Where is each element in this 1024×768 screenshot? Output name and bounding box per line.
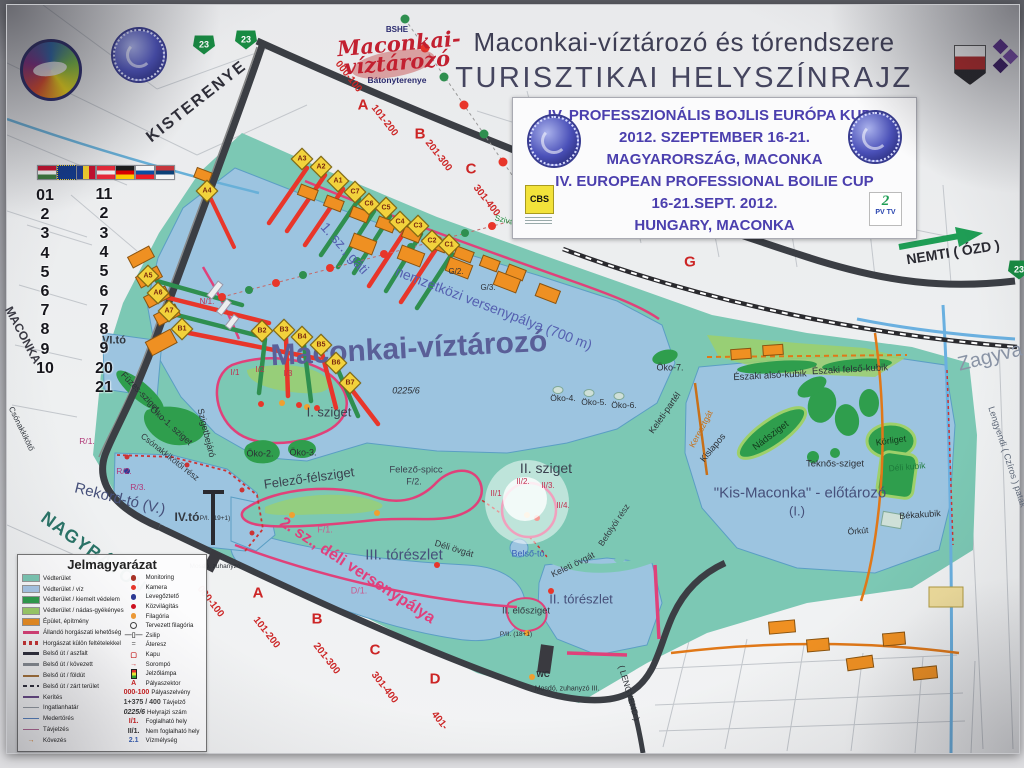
map-label: WC <box>536 671 549 679</box>
peg-label: A2 <box>317 164 326 171</box>
legend-item-label: Épület, építmény <box>43 618 89 625</box>
map-label: R/1. <box>79 437 95 446</box>
shore-number: 20 <box>95 360 113 378</box>
bshe-logo: BSHE Maconkai- víztározó Bátonyterenye <box>337 25 457 103</box>
swatch-line <box>23 729 39 730</box>
legend-item-label: Helyrajzi szám <box>147 709 187 716</box>
swatch-text: I/1. <box>129 718 139 725</box>
legend-item-label: Filagória <box>146 613 169 620</box>
swatch-ring <box>130 622 137 629</box>
peg-label: B7 <box>346 380 355 387</box>
legend-item: II/1.Nem foglalható hely <box>124 727 203 737</box>
event-line: HUNGARY, MACONKA <box>513 215 916 237</box>
legend-item: Belső út / kövezett <box>21 659 124 670</box>
legend-item-label: Horgászat külön feltételekkel <box>43 640 121 647</box>
legend-swatch: 0225/6 <box>124 709 145 716</box>
legend-swatch: A <box>124 680 144 687</box>
legend-item-label: Belső út / kövezett <box>43 661 93 668</box>
cbs-sponsor-logo: CBS <box>525 185 554 214</box>
peg-label: C6 <box>365 201 374 208</box>
swatch-text: 000-100 <box>124 689 150 696</box>
country-flag-eu <box>57 165 77 180</box>
peg-label: B5 <box>317 342 326 349</box>
map-label: Teknős-sziget <box>806 459 864 469</box>
legend-item-label: Védterület <box>43 575 71 582</box>
legend-item-label: Zsilip <box>146 632 160 639</box>
shore-number: 5 <box>41 264 50 282</box>
map-label: II/4. <box>556 502 569 510</box>
legend-item-label: Belső út / zárt terület <box>43 683 99 690</box>
legend-item: →Sorompó <box>124 659 203 669</box>
map-label: G <box>684 255 696 270</box>
cbs-logo-text-lines <box>525 217 552 226</box>
shore-number: 10 <box>36 360 54 378</box>
shore-number: 2 <box>41 206 50 224</box>
map-label: A <box>253 586 264 601</box>
legend-item: 1+375 / 400Távjelző <box>124 698 203 708</box>
legend-item: Kerítés <box>21 692 124 703</box>
shore-number: 9 <box>41 341 50 359</box>
shore-number: 21 <box>95 379 113 397</box>
swatch-text: 1+375 / 400 <box>124 699 161 706</box>
map-label: Öko-6. <box>611 401 637 410</box>
map-label: (I.) <box>789 505 805 518</box>
map-label: G/3. <box>480 284 495 292</box>
legend-item-label: Védterület / kiemelt védelem <box>43 596 120 603</box>
swatch-symbol: —▯— <box>125 631 143 639</box>
legend-swatch: = <box>124 641 144 648</box>
map-label: Felező-spicc <box>389 465 442 475</box>
map-label: B <box>415 127 426 142</box>
legend-swatch <box>21 696 41 698</box>
legend-swatch <box>21 607 41 615</box>
map-label: Öko-4. <box>550 394 576 403</box>
legend-swatch <box>21 574 41 582</box>
peg-label: A5 <box>144 273 153 280</box>
legend-item-label: Belső út / földút <box>43 672 85 679</box>
legend-item: APályaszektor <box>124 679 203 689</box>
swatch-dashline <box>23 685 39 687</box>
shore-number: 9 <box>100 340 109 358</box>
map-label: Mosdó, zuhanyzó III. <box>535 686 600 693</box>
map-label: Öko-5. <box>581 398 607 407</box>
legend-item-label: Pályaszektor <box>146 680 181 687</box>
event-line: IV. EUROPEAN PROFESSIONAL BOILIE CUP <box>513 171 916 193</box>
pvtv-sponsor-logo: 2 PV TV <box>869 192 902 226</box>
eu-coin-logo-left <box>529 116 579 166</box>
shore-number: 2 <box>100 205 109 223</box>
legend-item-label: Kapu <box>146 651 160 658</box>
legend-item-label: Belső út / aszfalt <box>43 650 88 657</box>
legend-item-label: Állandó horgászati lehetőség <box>43 629 121 636</box>
legend-swatch: 2.1 <box>124 737 144 744</box>
peg-label: B3 <box>280 327 289 334</box>
legend-item-label: Monitoring <box>146 574 174 581</box>
legend-item: —▯—Zsilip <box>124 631 203 641</box>
legend-swatch: 000-100 <box>124 689 150 696</box>
legend-swatch <box>21 707 41 708</box>
swatch-line <box>23 663 39 666</box>
swatch-rect <box>22 618 40 626</box>
swatch-dot <box>131 604 137 610</box>
swatch-dot <box>131 575 137 581</box>
legend-item: I/1.Foglalható hely <box>124 717 203 727</box>
map-label: II. tórészlet <box>549 593 613 606</box>
shore-number: 7 <box>100 302 109 320</box>
legend-item: Levegőztető <box>124 592 203 602</box>
swatch-text: II/1. <box>128 728 140 735</box>
peg-label: B4 <box>298 334 307 341</box>
peg-label: C1 <box>445 242 454 249</box>
legend-item: Medertörés <box>21 713 124 724</box>
swatch-symbol: → <box>130 661 137 668</box>
swatch-symbol: = <box>132 641 136 648</box>
legend-item: Tervezett filagória <box>124 621 203 631</box>
legend-item-label: Jelzőlámpa <box>146 670 177 677</box>
shore-number: 3 <box>41 225 50 243</box>
swatch-rect <box>22 574 40 582</box>
legend-swatch <box>124 594 144 600</box>
country-flag-at <box>96 165 116 180</box>
swatch-line <box>23 652 39 655</box>
legend-item: Védterület / víz <box>21 584 124 595</box>
legend-swatch: ▢ <box>124 651 144 659</box>
peg-label: A6 <box>154 290 163 297</box>
swatch-rect <box>22 585 40 593</box>
legend-item: Közvilágítás <box>124 602 203 612</box>
traffic-light-icon <box>131 669 137 679</box>
eu-coin-logo-topleft <box>113 29 165 81</box>
event-info-box: IV. PROFESSZIONÁLIS BOJLIS EURÓPA KUPA20… <box>512 97 917 239</box>
legend-item-label: Medertörés <box>43 715 74 722</box>
map-label: Öko-2. <box>246 450 273 459</box>
legend-item: Horgászat külön feltételekkel <box>21 638 124 649</box>
shore-number: 3 <box>100 225 109 243</box>
legend-swatch <box>124 669 144 679</box>
legend-item-label: Pályaszelvény <box>151 689 190 696</box>
legend-swatch <box>124 613 144 619</box>
swatch-symbol: ▢ <box>130 651 137 659</box>
shore-number: 7 <box>41 302 50 320</box>
legend-item: Belső út / zárt terület <box>21 681 124 692</box>
shore-number: 11 <box>96 186 113 204</box>
map-label: I/3 <box>284 370 293 378</box>
map-label: 0225/6 <box>392 387 420 396</box>
map-label: III. tórészlet <box>365 548 443 563</box>
legend-swatch <box>21 585 41 593</box>
legend-column-left: VédterületVédterület / vízVédterület / k… <box>21 573 124 746</box>
legend-item: Belső út / aszfalt <box>21 649 124 660</box>
map-label: F/2. <box>406 478 422 487</box>
peg-label: C5 <box>382 205 391 212</box>
swatch-text: A <box>131 680 136 687</box>
map-label: N/1. <box>200 298 215 306</box>
map-label: D <box>430 672 441 687</box>
legend-swatch <box>124 575 144 581</box>
peg-label: C2 <box>428 238 437 245</box>
legend-item-label: Levegőztető <box>146 593 179 600</box>
legend-title: Jelmagyarázat <box>18 557 206 572</box>
swatch-rect <box>22 607 40 615</box>
legend-item: Védterület <box>21 573 124 584</box>
map-label: Öko-3. <box>289 449 316 458</box>
map-label: I. sziget <box>307 406 352 419</box>
legend-item-label: Védterület / víz <box>43 586 84 593</box>
legend-item: Védterület / kiemelt védelem <box>21 595 124 606</box>
legend-box: Jelmagyarázat VédterületVédterület / víz… <box>17 554 207 752</box>
pvtv-2-icon: 2 <box>870 193 901 209</box>
peg-label: A3 <box>298 156 307 163</box>
legend-swatch <box>21 718 41 719</box>
legend-swatch: II/1. <box>124 728 144 735</box>
page-subtitle: TURISZTIKAI HELYSZÍNRAJZ <box>449 62 919 95</box>
legend-swatch <box>21 675 41 677</box>
map-label: P/I. (19+1) <box>200 516 231 523</box>
peg-label: C3 <box>414 223 423 230</box>
swatch-line <box>23 675 39 677</box>
map-board: KISTERENYENEMTI ( ÓZD )ZagyvaLengyendi (… <box>6 4 1020 754</box>
map-label: I/1 <box>231 369 240 377</box>
map-label: "Kis-Maconka" - előtározó <box>714 486 886 501</box>
legend-swatch: → <box>124 661 144 668</box>
country-flag-hu <box>37 165 57 180</box>
swatch-dot <box>131 594 137 600</box>
shore-number: 8 <box>100 321 109 339</box>
country-flag-de <box>115 165 135 180</box>
legend-item-label: Távjelző <box>163 699 186 706</box>
legend-item: 000-100Pályaszelvény <box>124 688 203 698</box>
legend-item: Védterület / nádas-gyékényes <box>21 605 124 616</box>
legend-swatch <box>21 729 41 730</box>
peg-label: C4 <box>396 219 405 226</box>
legend-item: Jelzőlámpa <box>124 669 203 679</box>
map-label: II/2. <box>516 478 529 486</box>
legend-item-label: Kerítés <box>43 694 62 701</box>
legend-item: 0225/6Helyrajzi szám <box>124 707 203 717</box>
legend-item: Távjelzés <box>21 724 124 735</box>
peg-label: B1 <box>178 326 187 333</box>
legend-item-label: Vízmélység <box>146 737 178 744</box>
legend-item-label: Áteresz <box>146 641 167 648</box>
legend-item: Ingatlanhatár <box>21 703 124 714</box>
swatch-text: 0225/6 <box>124 709 145 716</box>
eu-coin-logo-right <box>850 112 900 162</box>
shore-number: 6 <box>100 283 109 301</box>
map-label: C <box>370 643 381 658</box>
map-label: II. sziget <box>520 461 572 475</box>
diamond-logo-icon <box>993 41 1019 75</box>
legend-swatch: I/1. <box>124 718 144 725</box>
pvtv-caption: PV TV <box>870 209 901 216</box>
shore-number: 6 <box>41 283 50 301</box>
map-label: D/1. <box>351 587 368 596</box>
peg-label: A1 <box>334 178 343 185</box>
legend-item: Állandó horgászati lehetőség <box>21 627 124 638</box>
swatch-symbol: → <box>28 737 35 744</box>
map-label: IV.tó <box>175 511 200 523</box>
legend-item: Monitoring <box>124 573 203 583</box>
shore-number: 5 <box>100 263 109 281</box>
country-flag-sk <box>135 165 155 180</box>
peg-label: A4 <box>203 188 212 195</box>
legend-swatch <box>21 596 41 604</box>
legend-swatch <box>21 641 41 645</box>
peg-label: B2 <box>258 328 267 335</box>
legend-item-label: Ingatlanhatár <box>43 704 79 711</box>
map-label: I/2 <box>256 366 265 374</box>
peg-label: C7 <box>351 189 360 196</box>
country-flag-rs <box>155 165 175 180</box>
legend-swatch <box>124 622 144 629</box>
legend-item: Belső út / földút <box>21 670 124 681</box>
legend-item: →Kövezés <box>21 735 124 746</box>
swatch-dot <box>131 585 137 591</box>
map-label: C <box>466 162 477 177</box>
legend-item: ▢Kapu <box>124 650 203 660</box>
legend-item-label: Közvilágítás <box>146 603 179 610</box>
map-label: R/3. <box>130 483 146 492</box>
legend-swatch <box>124 604 144 610</box>
map-label: G/2. <box>448 268 463 276</box>
legend-swatch: 1+375 / 400 <box>124 699 161 706</box>
shore-number: 4 <box>41 245 50 263</box>
swatch-line <box>23 696 39 698</box>
map-label: R/2. <box>116 467 132 476</box>
title-block: Maconkai-víztározó és tórendszere TURISZ… <box>449 27 919 95</box>
legend-item-label: Nem foglalható hely <box>146 728 200 735</box>
map-label: F/1. <box>317 526 333 535</box>
swatch-rect <box>22 596 40 604</box>
map-label: B <box>312 612 323 627</box>
legend-swatch: —▯— <box>124 631 144 639</box>
legend-item-label: Tervezett filagória <box>146 622 194 629</box>
legend-swatch: → <box>21 737 41 744</box>
legend-item: Filagória <box>124 611 203 621</box>
fish-club-logo <box>20 39 82 101</box>
peg-label: B6 <box>332 360 341 367</box>
legend-item-label: Kamera <box>146 584 167 591</box>
legend-column-right: MonitoringKameraLevegőztetőKözvilágításF… <box>124 573 203 746</box>
event-line: 16-21.SEPT. 2012. <box>513 193 916 215</box>
swatch-line <box>23 631 39 634</box>
map-label: Belső-tó <box>511 550 544 559</box>
peg-label: A7 <box>165 308 174 315</box>
country-flag-ro <box>76 165 96 180</box>
legend-item-label: Védterület / nádas-gyékényes <box>43 607 124 614</box>
legend-item-label: Kövezés <box>43 737 66 744</box>
legend-swatch <box>21 618 41 626</box>
swatch-dash <box>23 641 39 645</box>
map-label: II. elősziget <box>502 606 550 616</box>
legend-swatch <box>21 652 41 655</box>
shore-number: 8 <box>41 321 50 339</box>
swatch-line <box>23 718 39 719</box>
legend-item: Épület, építmény <box>21 616 124 627</box>
legend-item: =Áteresz <box>124 640 203 650</box>
map-label: Öko-7. <box>656 364 683 373</box>
map-label: Örkút <box>847 526 868 536</box>
map-label: II/1 <box>490 490 501 498</box>
legend-swatch <box>21 631 41 634</box>
swatch-dot <box>131 613 137 619</box>
map-label: II/3. <box>541 482 554 490</box>
legend-swatch <box>124 585 144 591</box>
shore-number: 01 <box>36 187 54 205</box>
shore-number: 4 <box>100 244 109 262</box>
legend-item: 2.1Vízmélység <box>124 736 203 746</box>
legend-item-label: Sorompó <box>146 661 171 668</box>
page-title: Maconkai-víztározó és tórendszere <box>449 27 919 58</box>
legend-item-label: Távjelzés <box>43 726 69 733</box>
legend-item-label: Foglalható hely <box>146 718 187 725</box>
legend-item: Kamera <box>124 583 203 593</box>
event-lines: IV. PROFESSZIONÁLIS BOJLIS EURÓPA KUPA20… <box>513 98 916 237</box>
swatch-text: 2.1 <box>129 737 139 744</box>
legend-swatch <box>21 685 41 687</box>
map-label: P/II. (18+1) <box>500 632 532 639</box>
legend-swatch <box>21 663 41 666</box>
swatch-line <box>23 707 39 708</box>
